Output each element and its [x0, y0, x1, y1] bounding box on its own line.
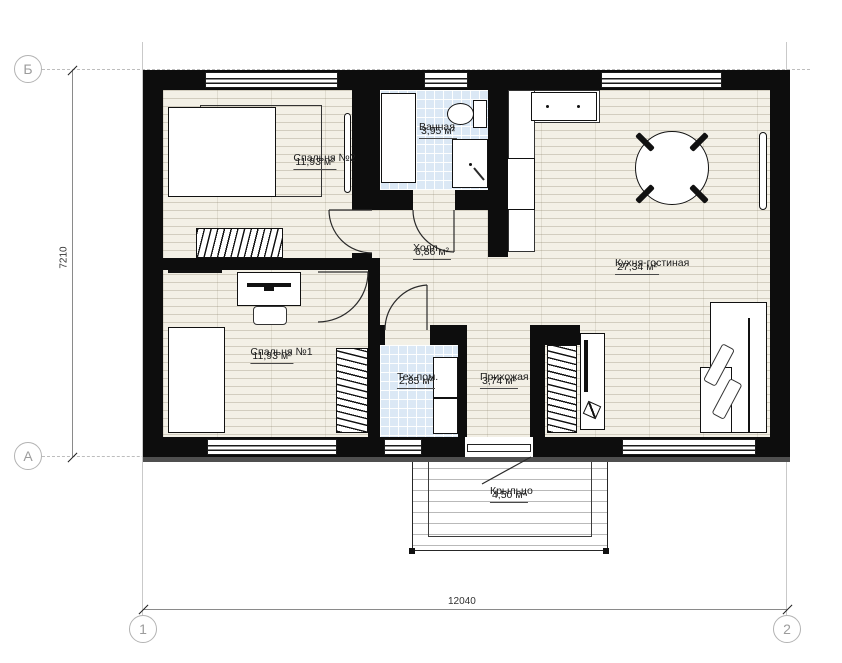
room-label-kitchen-living: Кухня-гостиная 27,34 м² [615, 258, 659, 275]
stove [505, 158, 535, 210]
wall-entry-right [530, 345, 545, 437]
window-bedroom2 [205, 72, 338, 88]
room-label-bedroom1: Спальня №1 11,93 м² [250, 347, 293, 364]
axis-marker-2: 2 [773, 615, 801, 643]
room-label-entry: Прихожая 3,74 м² [480, 372, 518, 389]
entrance-door-leaf [467, 444, 531, 452]
radiator [759, 132, 767, 210]
single-bed [168, 327, 225, 433]
room-label-porch: Крыльцо 4,50 м² [490, 486, 528, 503]
wall-kitchen-divider [488, 90, 508, 257]
room-label-bedroom2: Спальня №2 11,93 м² [293, 153, 336, 170]
wall-tech-top-a [368, 325, 385, 345]
wall-bedrooms-divider [163, 258, 368, 270]
porch-corner-dot [409, 548, 415, 554]
room-label-techroom: Тех.пом. 2,85 м² [397, 372, 435, 389]
dimension-line-vertical [72, 70, 73, 457]
axis-marker-b: Б [14, 55, 42, 83]
entry-wardrobe [547, 345, 577, 433]
window-kitchen [601, 72, 722, 88]
bedroom1-wardrobe [336, 348, 368, 433]
window-bathroom [424, 72, 468, 88]
wall-bathroom-bottom-a [352, 190, 413, 210]
sofa-back-line [748, 318, 750, 432]
wall-tech-top-b [430, 325, 467, 345]
wall-exterior-right [770, 70, 790, 457]
wall-entry-left [458, 345, 467, 437]
bedroom2-wardrobe [196, 228, 283, 258]
bathtub [381, 93, 416, 183]
desk-chair [253, 306, 287, 325]
desk-monitor-stand [264, 287, 274, 291]
sink-drain-dot [546, 105, 549, 108]
dimension-height-label: 7210 [59, 246, 70, 268]
dimension-line-horizontal [143, 609, 787, 610]
floor-plan-canvas: 7210 12040 Б А 1 2 [0, 0, 842, 663]
wall-vertical-stub [368, 258, 380, 437]
axis-marker-a: А [14, 442, 42, 470]
room-label-hall: Холл 6,86 м² [413, 243, 451, 260]
kitchen-sink-unit [531, 92, 597, 121]
exterior-plinth [143, 457, 790, 462]
washing-machine-dot [469, 163, 472, 166]
sink-drain-dot [577, 105, 580, 108]
window-techroom [384, 439, 422, 455]
dimension-width-label: 12040 [448, 596, 476, 607]
axis-marker-1: 1 [129, 615, 157, 643]
window-living [622, 439, 756, 455]
double-bed [168, 107, 276, 197]
window-bedroom1 [207, 439, 337, 455]
toilet-tank [473, 100, 487, 128]
wall-bathroom-bottom-b [455, 190, 488, 210]
tv-screen [584, 340, 588, 392]
wall-closet-top [530, 325, 580, 345]
water-heater-unit [433, 398, 458, 434]
wall-exterior-left [143, 70, 163, 457]
porch-corner-dot [603, 548, 609, 554]
room-label-bathroom: Ванная 3,95 м² [419, 122, 457, 139]
